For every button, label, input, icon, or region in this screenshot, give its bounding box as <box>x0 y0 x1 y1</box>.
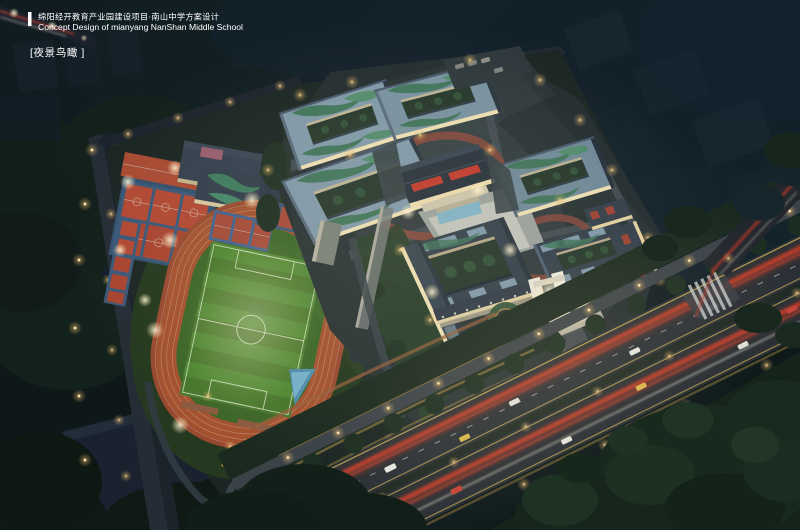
svg-text:Concept Design of mianyang Na: Concept Design of mianyang NanShan Middl… <box>38 22 243 32</box>
svg-text:绵阳经开教育产业园建设项目·南山中学方案设计: 绵阳经开教育产业园建设项目·南山中学方案设计 <box>38 12 219 22</box>
svg-text:[夜景鸟瞰 ]: [夜景鸟瞰 ] <box>30 46 85 59</box>
